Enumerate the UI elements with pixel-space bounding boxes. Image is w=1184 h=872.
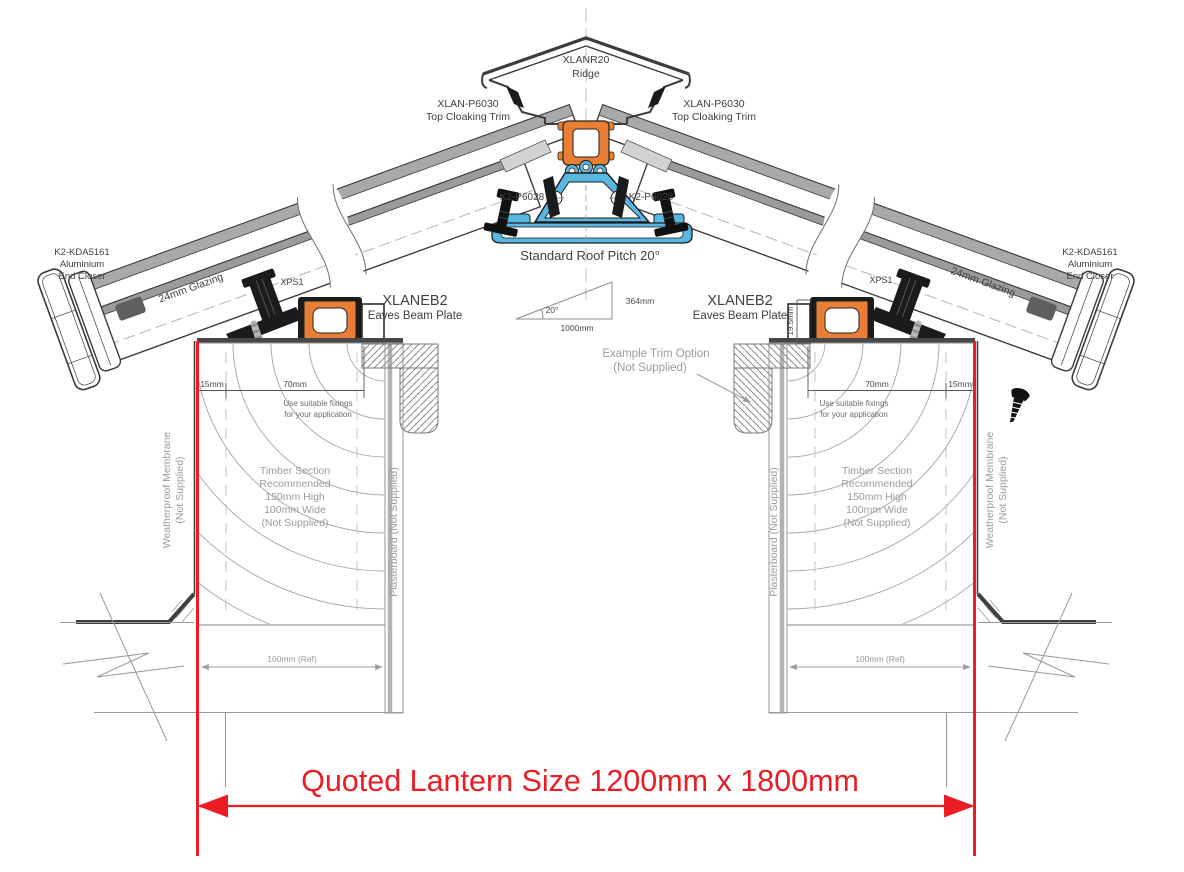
eaves-beam-name-left: Eaves Beam Plate [368, 310, 463, 322]
ridge-thermal-profile [558, 121, 614, 165]
pitch-angle-label: 20° [546, 305, 559, 315]
roof-deck-lines [60, 623, 403, 788]
ridge-name-label: Ridge [572, 68, 600, 80]
pitch-run-label: 1000mm [560, 323, 593, 333]
timber-note-line2-right: Recommended [841, 478, 912, 490]
fixings-note-line2-right: for your application [820, 410, 888, 419]
timber-note-line4-right: 100mm Wide [846, 504, 908, 516]
end-closer-part-left: K2-KDA5161 [54, 247, 109, 258]
end-closer-line2-right: Aluminium [1068, 259, 1112, 270]
ridge-bolt-label-left: K2-P6028 [500, 192, 545, 203]
cloaking-name-label-left: Top Cloaking Trim [426, 111, 510, 123]
fixings-note-line1-left: Use suitable fixings [284, 399, 353, 408]
trim-option-line2: (Not Supplied) [613, 362, 687, 374]
pitch-title: Standard Roof Pitch 20° [520, 248, 660, 263]
end-closer-part-right: K2-KDA5161 [1062, 247, 1117, 258]
cloaking-name-label-right: Top Cloaking Trim [672, 111, 756, 123]
timber-note-line5-left: (Not Supplied) [261, 517, 328, 529]
end-closer-line3-left: End Closer [59, 271, 106, 282]
trim-option-line1: Example Trim Option [602, 348, 709, 360]
ref-dimension-label-left: 100mm (Ref) [267, 654, 317, 664]
plasterboard-label-right: Plasterboard (Not Supplied) [768, 467, 780, 597]
break-symbol [63, 593, 184, 741]
ref-dimension-label-right: 100mm (Ref) [855, 654, 905, 664]
eaves-beam-name-right: Eaves Beam Plate [693, 310, 788, 322]
end-closer-line3-right: End Closer [1067, 271, 1114, 282]
timber-note-line5-right: (Not Supplied) [843, 517, 910, 529]
timber-note-line3-left: 150mm High [265, 491, 325, 503]
dim-19-5mm: 19.5mm [786, 306, 795, 335]
pitch-triangle [516, 282, 612, 319]
plasterboard-label-left: Plasterboard (Not Supplied) [388, 467, 400, 597]
membrane-label-line2-left: (Not Supplied) [174, 456, 186, 523]
timber-note-line1-left: Timber Section [260, 465, 330, 477]
quoted-size-label: Quoted Lantern Size 1200mm x 1800mm [301, 764, 859, 798]
cloaking-part-label-right: XLAN-P6030 [683, 98, 744, 110]
dim-15mm-left: 15mm [200, 379, 224, 389]
eaves-beam-part-right: XLANEB2 [707, 293, 772, 309]
xps-label-left: XPS1 [280, 277, 303, 287]
ridge-bolt-label-right: K2-P6028 [629, 192, 674, 203]
dim-70mm-left: 70mm [283, 379, 307, 389]
fixings-note-line1-right: Use suitable fixings [820, 399, 889, 408]
xps-label-right: XPS1 [869, 275, 892, 285]
pitch-rise-label: 364mm [626, 296, 654, 306]
screw-icon [1002, 387, 1030, 426]
membrane-label-line1-right: Weatherproof Membrane [984, 432, 996, 549]
timber-note-line1-right: Timber Section [842, 465, 912, 477]
membrane-label-line2-right: (Not Supplied) [997, 456, 1009, 523]
timber-note-line4-left: 100mm Wide [264, 504, 326, 516]
end-closer-line2-left: Aluminium [60, 259, 104, 270]
membrane-label-line1-left: Weatherproof Membrane [161, 432, 173, 549]
cloaking-part-label-left: XLAN-P6030 [437, 98, 498, 110]
technical-drawing-canvas: XLANR20 Ridge XLAN-P6030 Top Cloaking Tr… [0, 0, 1184, 872]
dim-15mm-right: 15mm [948, 379, 972, 389]
timber-note-line2-left: Recommended [259, 478, 330, 490]
ridge-part-label: XLANR20 [563, 54, 610, 66]
timber-note-line3-right: 150mm High [847, 491, 907, 503]
dim-70mm-right: 70mm [865, 379, 889, 389]
eaves-beam-part-left: XLANEB2 [382, 293, 447, 309]
fixings-note-line2-left: for your application [284, 410, 352, 419]
